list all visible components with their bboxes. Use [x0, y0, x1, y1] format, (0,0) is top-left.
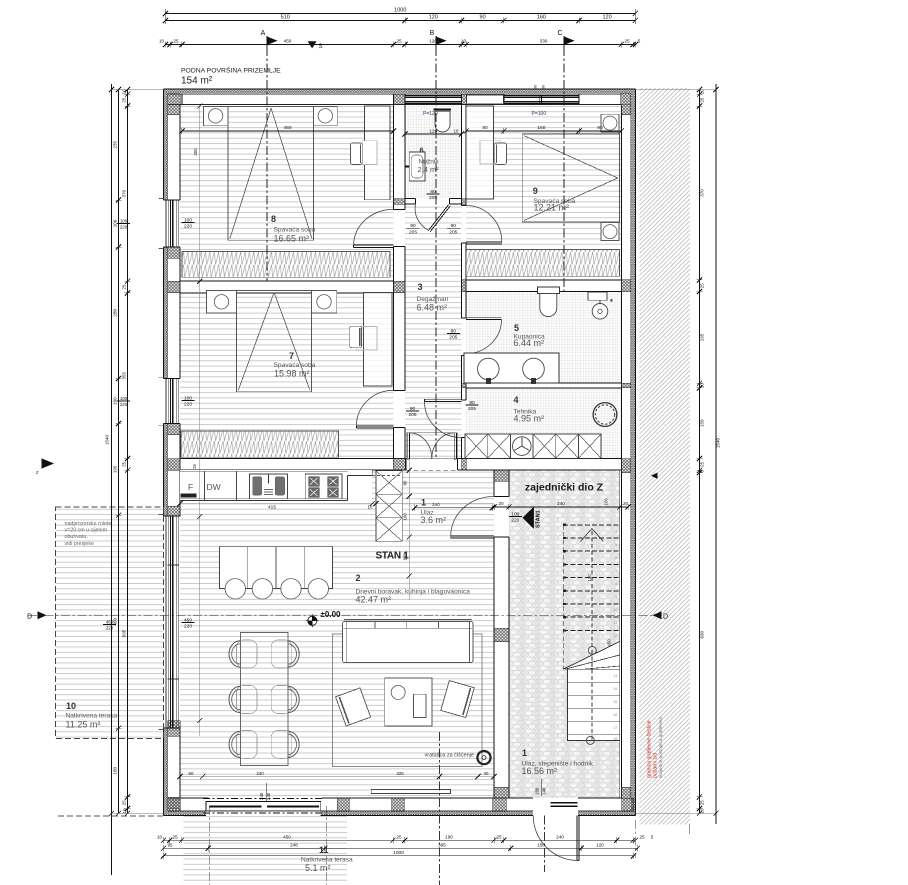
svg-text:25: 25 — [173, 39, 179, 44]
svg-text:25: 25 — [122, 800, 127, 806]
svg-text:10: 10 — [461, 39, 467, 44]
svg-text:25: 25 — [192, 464, 197, 469]
svg-text:190: 190 — [445, 835, 453, 840]
svg-text:120: 120 — [603, 15, 612, 21]
svg-text:20: 20 — [498, 501, 504, 506]
svg-text:13: 13 — [613, 674, 617, 678]
svg-text:B: B — [430, 30, 435, 37]
svg-text:4.95 m²: 4.95 m² — [514, 414, 545, 424]
svg-text:6.48 m²: 6.48 m² — [417, 303, 448, 313]
svg-text:P=120: P=120 — [423, 111, 438, 117]
svg-text:180: 180 — [113, 767, 118, 775]
svg-text:154 m²: 154 m² — [181, 76, 213, 87]
svg-text:355: 355 — [122, 371, 127, 379]
svg-text:10: 10 — [157, 835, 163, 840]
svg-text:7: 7 — [615, 569, 617, 573]
svg-text:80: 80 — [402, 480, 407, 485]
svg-text:10: 10 — [368, 504, 373, 509]
svg-text:370: 370 — [122, 189, 127, 197]
svg-text:7: 7 — [289, 351, 294, 361]
svg-text:11.25 m²: 11.25 m² — [66, 720, 101, 730]
svg-text:240: 240 — [556, 835, 564, 840]
svg-text:D: D — [27, 613, 32, 620]
svg-text:160: 160 — [537, 15, 546, 21]
svg-text:8: 8 — [615, 582, 617, 586]
svg-text:25: 25 — [700, 283, 705, 289]
svg-text:15: 15 — [613, 700, 617, 704]
svg-text:v=20 cm u cijelom: v=20 cm u cijelom — [65, 528, 108, 534]
svg-text:60: 60 — [189, 771, 194, 776]
svg-text:11: 11 — [614, 621, 618, 625]
svg-text:205: 205 — [449, 230, 457, 236]
svg-text:120: 120 — [429, 15, 438, 21]
svg-text:1000: 1000 — [393, 850, 404, 856]
svg-text:STAN1: STAN1 — [536, 510, 542, 528]
svg-text:6: 6 — [420, 146, 424, 155]
svg-text:16: 16 — [613, 713, 617, 717]
svg-text:18: 18 — [613, 737, 617, 741]
svg-text:P=100: P=100 — [532, 111, 547, 117]
svg-text:vratašca za čišćenje: vratašca za čišćenje — [425, 753, 475, 759]
svg-text:vidi presjeke: vidi presjeke — [65, 541, 94, 547]
svg-text:5: 5 — [514, 323, 519, 333]
svg-text:100: 100 — [120, 218, 128, 223]
svg-text:6: 6 — [615, 556, 617, 560]
svg-text:5: 5 — [638, 39, 641, 44]
svg-text:220: 220 — [106, 626, 114, 631]
svg-text:100: 100 — [120, 396, 128, 401]
svg-text:3.6 m²: 3.6 m² — [421, 515, 447, 525]
svg-text:10: 10 — [66, 701, 76, 711]
svg-text:205: 205 — [468, 406, 476, 412]
svg-text:90: 90 — [597, 125, 603, 131]
svg-text:240: 240 — [432, 502, 440, 507]
svg-text:6.44 m²: 6.44 m² — [514, 338, 545, 348]
svg-text:25: 25 — [699, 461, 704, 467]
svg-text:510: 510 — [281, 15, 290, 21]
svg-text:25: 25 — [396, 835, 402, 840]
svg-text:F: F — [188, 482, 193, 492]
svg-text:Spavaća soba: Spavaća soba — [274, 227, 316, 234]
svg-text:1540: 1540 — [716, 437, 721, 448]
svg-text:280: 280 — [113, 309, 118, 317]
svg-text:220: 220 — [511, 518, 519, 524]
svg-text:nadprozorske rolete: nadprozorske rolete — [65, 521, 112, 527]
svg-text:obuhvatu,: obuhvatu, — [65, 534, 88, 540]
svg-text:10: 10 — [613, 608, 617, 612]
svg-text:25: 25 — [172, 835, 178, 840]
svg-text:susjedna postojeća građevina: susjedna postojeća građevina — [658, 717, 663, 778]
svg-text:5: 5 — [615, 543, 617, 547]
svg-text:25: 25 — [122, 461, 127, 467]
svg-text:205: 205 — [429, 195, 437, 201]
svg-text:40: 40 — [484, 771, 489, 776]
svg-text:330: 330 — [540, 39, 548, 44]
svg-text:25: 25 — [700, 97, 705, 103]
svg-text:370: 370 — [699, 189, 704, 197]
svg-text:235: 235 — [113, 141, 118, 149]
svg-text:S: S — [319, 44, 323, 50]
svg-text:25: 25 — [639, 835, 645, 840]
svg-text:120: 120 — [429, 39, 437, 44]
svg-text:✱: ✱ — [610, 298, 614, 303]
svg-text:±0.00: ±0.00 — [321, 610, 342, 619]
svg-text:100: 100 — [113, 219, 118, 227]
svg-text:100: 100 — [113, 397, 118, 405]
svg-text:160: 160 — [537, 125, 545, 131]
svg-text:9: 9 — [615, 595, 617, 599]
svg-text:150: 150 — [537, 843, 545, 848]
svg-text:205: 205 — [409, 230, 417, 236]
svg-text:20: 20 — [623, 501, 629, 506]
svg-text:325: 325 — [396, 771, 404, 776]
svg-text:42.47 m²: 42.47 m² — [356, 595, 392, 605]
svg-text:220: 220 — [184, 224, 192, 230]
svg-text:A: A — [261, 30, 266, 37]
svg-text:90: 90 — [542, 85, 546, 89]
svg-text:90: 90 — [534, 85, 538, 89]
svg-text:695: 695 — [122, 629, 127, 637]
svg-text:195: 195 — [113, 465, 118, 473]
svg-text:450: 450 — [284, 39, 292, 44]
svg-text:450: 450 — [607, 639, 612, 647]
svg-text:15.98 m²: 15.98 m² — [274, 369, 310, 379]
svg-text:1: 1 — [522, 748, 527, 758]
svg-text:10: 10 — [122, 808, 127, 814]
svg-text:C: C — [557, 30, 562, 37]
svg-text:100: 100 — [402, 513, 407, 521]
svg-text:5.1 m²: 5.1 m² — [305, 863, 331, 873]
svg-text:220: 220 — [184, 624, 192, 630]
svg-text:25: 25 — [624, 39, 630, 44]
svg-text:195: 195 — [699, 333, 704, 341]
svg-text:2: 2 — [356, 573, 361, 583]
svg-text:240: 240 — [542, 787, 547, 795]
svg-text:14: 14 — [613, 687, 617, 691]
svg-text:240: 240 — [259, 792, 264, 800]
svg-text:220: 220 — [120, 402, 128, 407]
svg-text:240: 240 — [256, 771, 264, 776]
svg-text:220: 220 — [184, 402, 192, 408]
svg-text:165: 165 — [402, 553, 407, 561]
svg-text:DW: DW — [207, 482, 221, 492]
svg-text:25: 25 — [699, 800, 704, 806]
svg-text:3: 3 — [418, 282, 423, 292]
svg-text:25: 25 — [396, 39, 402, 44]
svg-text:150: 150 — [535, 787, 540, 795]
svg-text:D: D — [663, 613, 668, 620]
svg-text:450: 450 — [283, 835, 291, 840]
svg-text:25: 25 — [122, 284, 127, 290]
svg-text:8: 8 — [271, 214, 276, 224]
svg-text:2.4 m²: 2.4 m² — [418, 165, 440, 174]
svg-text:25: 25 — [122, 97, 127, 103]
svg-text:1: 1 — [421, 498, 426, 508]
svg-text:1540: 1540 — [105, 434, 110, 445]
svg-text:95: 95 — [167, 843, 173, 848]
svg-text:1000: 1000 — [394, 8, 406, 14]
svg-text:zajednički dio Z: zajednički dio Z — [525, 482, 604, 494]
svg-text:9: 9 — [533, 186, 538, 196]
svg-text:450: 450 — [284, 125, 292, 131]
svg-text:10: 10 — [454, 128, 459, 133]
svg-text:17: 17 — [613, 726, 617, 730]
svg-text:220: 220 — [120, 225, 128, 230]
svg-text:4: 4 — [615, 530, 617, 534]
svg-text:10: 10 — [159, 39, 165, 44]
svg-text:415: 415 — [268, 504, 276, 510]
svg-text:10: 10 — [700, 808, 705, 814]
svg-text:90: 90 — [480, 15, 486, 21]
svg-text:5: 5 — [651, 835, 654, 840]
svg-text:25: 25 — [496, 835, 502, 840]
svg-text:80: 80 — [482, 125, 488, 131]
svg-text:240: 240 — [557, 501, 565, 506]
svg-text:10: 10 — [700, 383, 705, 389]
svg-text:248: 248 — [290, 843, 298, 848]
svg-text:690: 690 — [700, 630, 705, 638]
svg-text:16.65 m²: 16.65 m² — [274, 234, 310, 244]
svg-text:12: 12 — [613, 634, 617, 638]
svg-text:130: 130 — [587, 574, 592, 582]
svg-text:200: 200 — [193, 148, 198, 156]
svg-text:100: 100 — [604, 498, 609, 506]
svg-text:16.56 m²: 16.56 m² — [522, 766, 558, 776]
svg-text:PODNA POVRŠINA PRIZEMLJE: PODNA POVRŠINA PRIZEMLJE — [181, 66, 281, 75]
svg-text:450: 450 — [106, 619, 114, 624]
svg-text:120: 120 — [429, 128, 437, 133]
svg-text:120: 120 — [596, 843, 604, 848]
svg-text:12.21 m²: 12.21 m² — [534, 203, 570, 213]
svg-text:205: 205 — [449, 335, 457, 341]
svg-text:Natkrivena terasa: Natkrivena terasa — [66, 713, 118, 720]
svg-text:4: 4 — [514, 395, 519, 405]
svg-text:205: 205 — [408, 412, 416, 418]
svg-text:150: 150 — [700, 419, 705, 427]
